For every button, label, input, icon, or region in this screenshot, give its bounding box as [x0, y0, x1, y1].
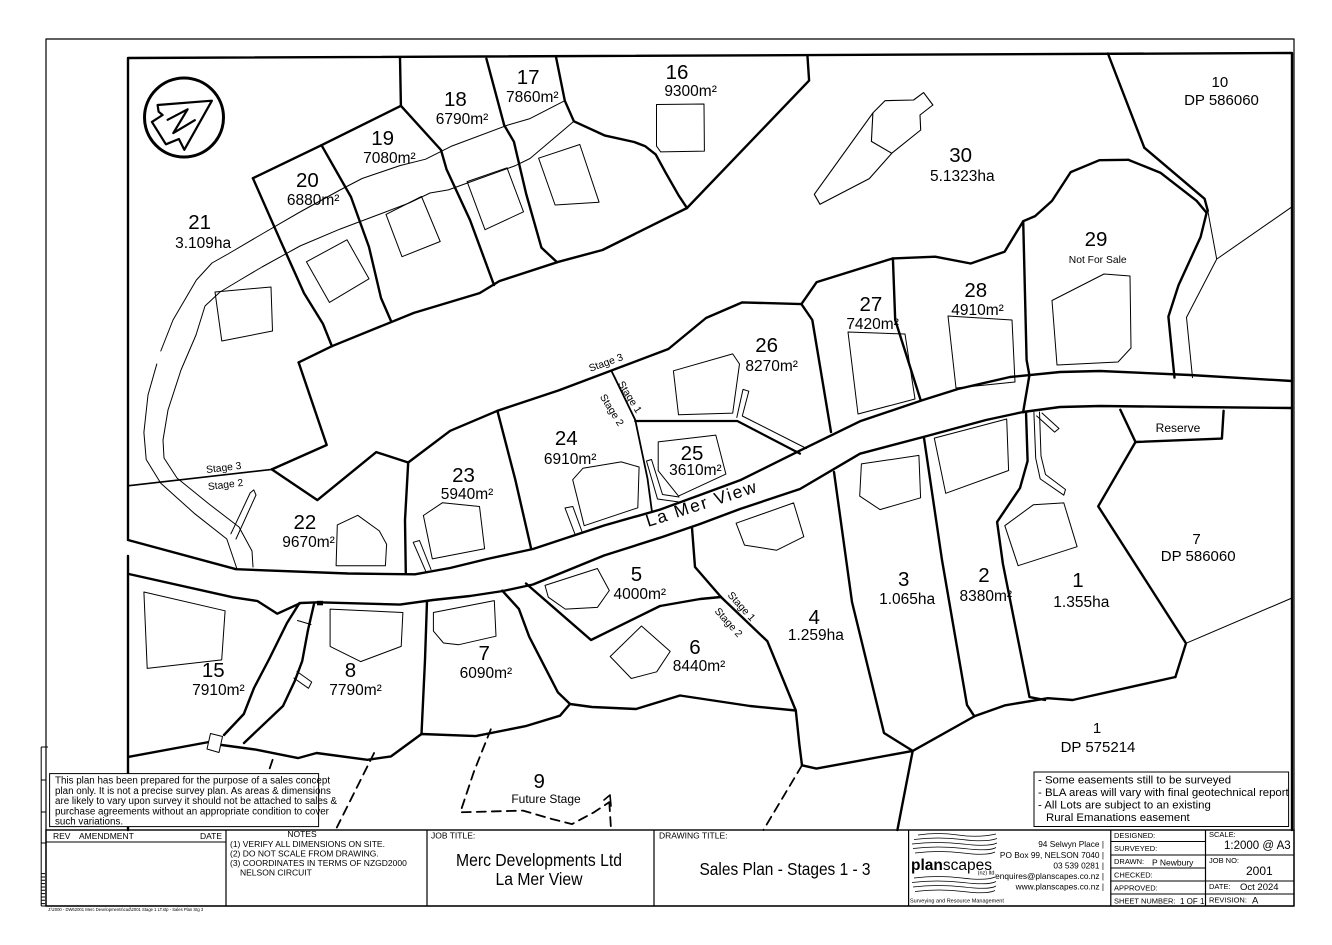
- svg-text:Not For Sale: Not For Sale: [1069, 255, 1127, 266]
- svg-text:3.109ha: 3.109ha: [175, 235, 231, 252]
- svg-text:03 539 0281 |: 03 539 0281 |: [1053, 861, 1104, 871]
- svg-text:7: 7: [478, 642, 489, 665]
- svg-text:SCALE:: SCALE:: [1209, 830, 1236, 839]
- svg-text:19: 19: [371, 127, 394, 150]
- svg-text:94 Selwyn Place |: 94 Selwyn Place |: [1038, 839, 1104, 849]
- svg-text:1.065ha: 1.065ha: [879, 591, 935, 608]
- svg-text:6910m²: 6910m²: [544, 451, 597, 468]
- svg-text:4910m²: 4910m²: [951, 302, 1004, 319]
- svg-text:(nz) ltd.: (nz) ltd.: [978, 871, 997, 877]
- svg-text:DP 586060: DP 586060: [1161, 548, 1236, 565]
- svg-text:J:\2000 - DW62001 Merc Develop: J:\2000 - DW62001 Merc Developments\cad\…: [48, 907, 204, 912]
- svg-text:10: 10: [1212, 74, 1229, 91]
- svg-text:1: 1: [1093, 720, 1101, 737]
- svg-text:1:2000 @ A3: 1:2000 @ A3: [1224, 840, 1291, 852]
- svg-text:DP 586060: DP 586060: [1184, 92, 1259, 109]
- svg-text:7420m²: 7420m²: [846, 316, 899, 333]
- svg-text:enquires@planscapes.co.nz |: enquires@planscapes.co.nz |: [995, 871, 1104, 881]
- svg-text:(3) COORDINATES IN TERMS OF NZ: (3) COORDINATES IN TERMS OF NZGD2000: [230, 858, 407, 868]
- svg-text:3610m²: 3610m²: [669, 462, 722, 479]
- svg-text:9: 9: [533, 770, 544, 793]
- svg-text:DRAWN:: DRAWN:: [1114, 857, 1144, 866]
- svg-text:Future Stage: Future Stage: [511, 792, 581, 806]
- svg-text:3: 3: [898, 568, 909, 591]
- svg-text:8270m²: 8270m²: [745, 358, 798, 375]
- svg-text:Oct 2024: Oct 2024: [1240, 882, 1279, 893]
- svg-text:DP 575214: DP 575214: [1061, 739, 1136, 756]
- svg-text:Sales Plan - Stages 1 - 3: Sales Plan - Stages 1 - 3: [700, 859, 871, 879]
- svg-text:29: 29: [1085, 228, 1108, 251]
- svg-text:8440m²: 8440m²: [673, 658, 726, 675]
- svg-text:27: 27: [859, 293, 882, 316]
- svg-text:A: A: [1252, 896, 1259, 907]
- svg-text:SHEET NUMBER:: SHEET NUMBER:: [1114, 897, 1176, 906]
- svg-text:20: 20: [296, 169, 319, 192]
- svg-text:7790m²: 7790m²: [329, 682, 382, 699]
- svg-text:1: 1: [1072, 569, 1083, 592]
- svg-text:CHECKED:: CHECKED:: [1114, 871, 1153, 880]
- svg-text:26: 26: [755, 334, 778, 357]
- svg-text:- Some easements still to be s: - Some easements still to be surveyed: [1038, 775, 1231, 787]
- svg-text:7: 7: [1192, 531, 1200, 548]
- svg-text:P Newbury: P Newbury: [1152, 858, 1194, 868]
- svg-text:9300m²: 9300m²: [664, 83, 717, 100]
- svg-text:7860m²: 7860m²: [506, 89, 559, 106]
- svg-text:AMENDMENT: AMENDMENT: [79, 831, 134, 841]
- svg-text:1.355ha: 1.355ha: [1053, 594, 1109, 611]
- svg-text:PO Box 99, NELSON 7040 |: PO Box 99, NELSON 7040 |: [1000, 850, 1104, 860]
- svg-text:1 OF 1: 1 OF 1: [1180, 897, 1205, 906]
- svg-text:4000m²: 4000m²: [614, 586, 667, 603]
- svg-text:(1) VERIFY ALL DIMENSIONS ON S: (1) VERIFY ALL DIMENSIONS ON SITE.: [230, 839, 385, 849]
- svg-text:Reserve: Reserve: [1156, 421, 1201, 435]
- svg-text:17: 17: [517, 66, 540, 89]
- svg-text:DRAWING TITLE:: DRAWING TITLE:: [659, 831, 727, 841]
- svg-text:22: 22: [293, 511, 316, 534]
- svg-text:APPROVED:: APPROVED:: [1114, 884, 1158, 893]
- svg-text:DESIGNED:: DESIGNED:: [1114, 831, 1155, 840]
- svg-text:30: 30: [949, 144, 972, 167]
- svg-text:15: 15: [202, 659, 225, 682]
- svg-text:DATE: DATE: [200, 831, 222, 841]
- svg-text:5: 5: [631, 563, 642, 586]
- svg-text:(2) DO NOT SCALE FROM DRAWING.: (2) DO NOT SCALE FROM DRAWING.: [230, 849, 379, 859]
- svg-text:- All Lots are subject to an e: - All Lots are subject to an existing: [1038, 800, 1211, 812]
- svg-text:4: 4: [808, 606, 819, 629]
- svg-text:7910m²: 7910m²: [192, 682, 245, 699]
- svg-text:La Mer View: La Mer View: [496, 869, 583, 889]
- svg-text:6790m²: 6790m²: [436, 111, 489, 128]
- svg-text:8380m²: 8380m²: [960, 588, 1013, 605]
- svg-text:REV: REV: [53, 831, 71, 841]
- svg-text:such variations.: such variations.: [55, 817, 123, 828]
- svg-text:Surveying and Resource Managem: Surveying and Resource Management: [910, 899, 1004, 905]
- svg-text:8: 8: [345, 659, 356, 682]
- svg-text:28: 28: [964, 279, 987, 302]
- svg-text:JOB NO:: JOB NO:: [1209, 856, 1239, 865]
- svg-text:6: 6: [689, 636, 700, 659]
- svg-text:JOB TITLE:: JOB TITLE:: [431, 831, 475, 841]
- svg-text:2001: 2001: [1246, 864, 1273, 878]
- svg-text:NOTES: NOTES: [287, 829, 317, 839]
- svg-text:6090m²: 6090m²: [460, 665, 513, 682]
- svg-text:16: 16: [666, 61, 689, 84]
- svg-text:21: 21: [188, 211, 211, 234]
- svg-text:18: 18: [444, 88, 467, 111]
- svg-text:1.259ha: 1.259ha: [788, 627, 844, 644]
- svg-text:REVISION:: REVISION:: [1209, 896, 1247, 905]
- svg-text:7080m²: 7080m²: [363, 150, 416, 167]
- svg-text:www.planscapes.co.nz |: www.planscapes.co.nz |: [1015, 882, 1104, 892]
- svg-text:2: 2: [978, 564, 989, 587]
- svg-text:Merc Developments Ltd: Merc Developments Ltd: [456, 850, 622, 870]
- svg-text:5940m²: 5940m²: [441, 486, 494, 503]
- svg-text:9670m²: 9670m²: [282, 534, 335, 551]
- svg-text:23: 23: [452, 464, 475, 487]
- svg-text:- BLA areas will vary with fin: - BLA areas will vary with final geotech…: [1038, 787, 1290, 799]
- svg-text:24: 24: [555, 427, 578, 450]
- svg-text:NELSON CIRCUIT: NELSON CIRCUIT: [240, 868, 312, 878]
- svg-text:5.1323ha: 5.1323ha: [930, 168, 995, 185]
- svg-text:Rural Emanations easement: Rural Emanations easement: [1046, 812, 1191, 824]
- svg-text:SURVEYED:: SURVEYED:: [1114, 844, 1157, 853]
- svg-text:6880m²: 6880m²: [287, 192, 340, 209]
- svg-text:DATE:: DATE:: [1209, 882, 1231, 891]
